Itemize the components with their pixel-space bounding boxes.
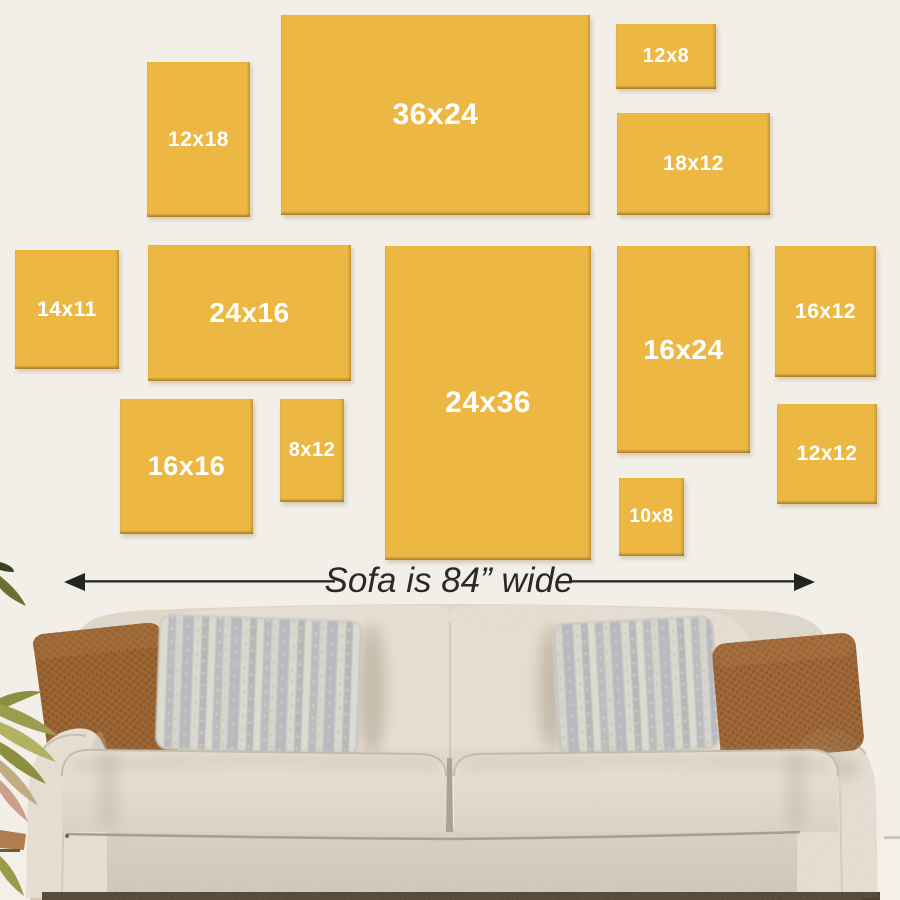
svg-text:Sofa is 84” wide: Sofa is 84” wide	[324, 561, 573, 600]
